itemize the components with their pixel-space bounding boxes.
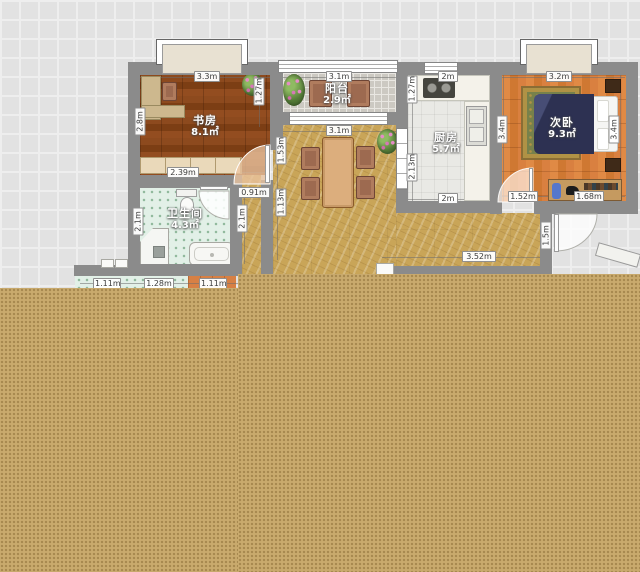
room-name: 次卧: [530, 116, 594, 129]
room-name: 阳台: [305, 82, 369, 95]
dim-study-shelf: 2.39m: [167, 167, 199, 178]
floor-fill-overlay-right: [238, 274, 640, 572]
dining-chair[interactable]: [356, 176, 375, 199]
dim-study-left: 2.8m: [135, 108, 146, 136]
wall-stub-right[interactable]: [388, 112, 396, 125]
wall-left[interactable]: [128, 62, 140, 276]
vase: [552, 183, 561, 199]
room-label-balcony: 阳台 2.9㎡: [305, 82, 369, 106]
study-bay-sill: [162, 44, 242, 74]
dim-kitchen-right: 3.4m: [497, 116, 508, 144]
sink-basin: [469, 109, 484, 124]
toilet-tank[interactable]: [176, 189, 197, 197]
dining-chair[interactable]: [356, 146, 375, 169]
dim-kitchen-bottom: 2m: [438, 193, 458, 204]
dim-study-top: 3.3m: [194, 71, 220, 82]
entry-door-leaf-open[interactable]: [595, 242, 640, 268]
pillow: [597, 100, 609, 122]
balcony-slider-door[interactable]: [289, 112, 388, 125]
dim-dining-left-upper: 1.53m: [276, 137, 287, 165]
room-area: 5.7㎡: [414, 144, 478, 155]
pillow: [597, 128, 609, 150]
books: [584, 183, 618, 190]
dim-study-right: 1.27m: [254, 78, 265, 106]
appliance[interactable]: [101, 259, 114, 268]
dim-kitchen-top: 2m: [438, 71, 458, 82]
shower-head: [153, 246, 165, 258]
dim-balcony-top: 3.1m: [326, 71, 352, 82]
appliance[interactable]: [115, 259, 128, 268]
floor-fill-overlay-left: [0, 288, 238, 572]
nightstand[interactable]: [605, 158, 621, 172]
drain: [210, 253, 214, 257]
room-label-bedroom: 次卧 9.3㎡: [530, 116, 594, 140]
dim-dining-top: 3.1m: [326, 125, 352, 136]
floorplan-canvas[interactable]: 3.3m 2.8m 1.27m 2.39m 0.91m 3.1m 3.1m 1.…: [0, 0, 640, 572]
dim-hallway-bottom: 3.52m: [462, 251, 496, 262]
dining-table[interactable]: [322, 137, 354, 208]
dim-study-door: 0.91m: [238, 187, 270, 198]
room-area: 9.3㎡: [530, 129, 594, 140]
room-area: 2.9㎡: [305, 95, 369, 106]
wall-bathroom-bottom[interactable]: [128, 264, 242, 276]
dim-bathroom-left: 2.1m: [133, 208, 144, 236]
bedroom-bay-sill: [526, 44, 592, 74]
desk-chair[interactable]: [162, 82, 177, 101]
nightstand[interactable]: [605, 79, 621, 93]
dim-bedroom-bottom-right: 1.68m: [574, 191, 604, 202]
room-name: 卫生间: [153, 207, 217, 220]
dim-bedroom-top: 3.2m: [546, 71, 572, 82]
room-name: 厨房: [414, 131, 478, 144]
dim-kitchen-left-upper: 1.27m: [407, 76, 418, 104]
bathroom-door-leaf[interactable]: [200, 186, 228, 190]
dining-chair[interactable]: [301, 177, 320, 200]
room-name: 书房: [173, 114, 237, 127]
entry-door-leaf[interactable]: [554, 214, 559, 252]
plant-icon[interactable]: [377, 129, 398, 154]
wall-right[interactable]: [626, 62, 638, 214]
room-area: 4.3㎡: [153, 220, 217, 231]
room-label-study: 书房 8.1㎡: [173, 114, 237, 138]
dim-bedroom-right: 3.4m: [609, 116, 620, 144]
dim-dining-left-lower: 1.13m: [276, 189, 287, 217]
dim-entry-side: 1.5m: [541, 222, 552, 250]
bathtub-icon[interactable]: [189, 242, 234, 266]
room-label-bathroom: 卫生间 4.3㎡: [153, 207, 217, 231]
dim-bedroom-bottom-left: 1.52m: [508, 191, 538, 202]
plant-icon[interactable]: [283, 74, 305, 106]
room-area: 8.1㎡: [173, 127, 237, 138]
entry-door-arc[interactable]: [555, 213, 598, 252]
room-label-kitchen: 厨房 5.7㎡: [414, 131, 478, 155]
dim-kitchen-left-lower: 2.13m: [407, 154, 418, 182]
study-door-leaf[interactable]: [265, 145, 270, 183]
dim-bathroom-right: 2.1m: [237, 205, 248, 233]
dining-chair[interactable]: [301, 147, 320, 170]
